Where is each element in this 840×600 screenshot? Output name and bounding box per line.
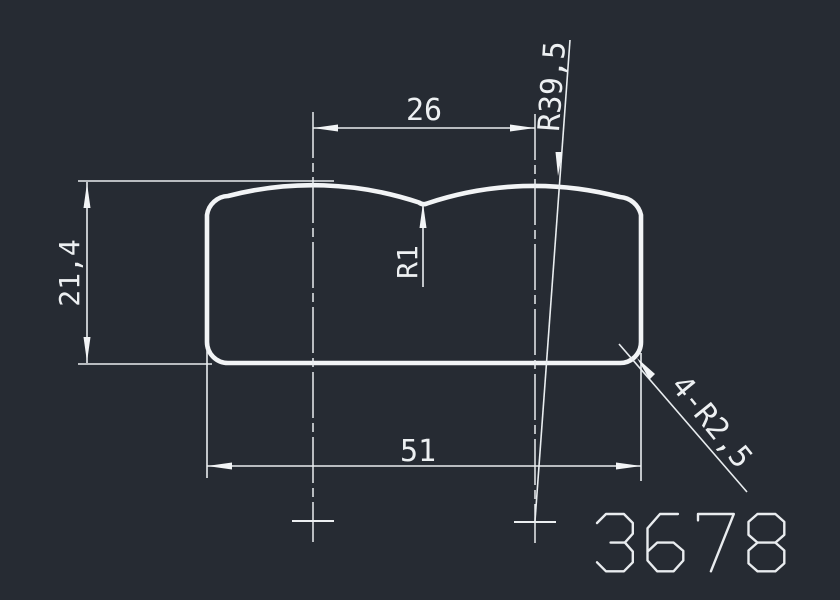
drawing-number <box>597 514 784 571</box>
arrowhead-bottom-width-right <box>616 463 641 470</box>
cad-drawing-canvas[interactable]: 26 21,4 R1 R39,5 51 4-R2,5 <box>0 0 840 600</box>
arrowhead-height-bottom <box>84 337 91 362</box>
arrowhead-center-fillet <box>420 203 427 228</box>
cad-drawing-svg: 26 21,4 R1 R39,5 51 4-R2,5 <box>0 0 840 600</box>
dim-text-bottom-width: 51 <box>400 434 436 469</box>
drawing-number-digit-stroke <box>648 514 684 571</box>
drawing-number-digit-stroke <box>749 543 785 572</box>
drawing-number-digit-stroke <box>749 514 785 543</box>
arrowhead-top-width-left <box>313 125 338 132</box>
drawing-number-digit-stroke <box>698 514 734 571</box>
dim-text-corner-radius: 4-R2,5 <box>664 369 759 475</box>
dim-text-center-fillet: R1 <box>391 245 424 279</box>
arrowhead-height-top <box>84 183 91 208</box>
dim-text-top-width: 26 <box>406 93 442 128</box>
dim-text-top-radius: R39,5 <box>532 40 573 133</box>
arrowhead-bottom-width-left <box>207 463 232 470</box>
dim-text-height: 21,4 <box>53 239 86 306</box>
